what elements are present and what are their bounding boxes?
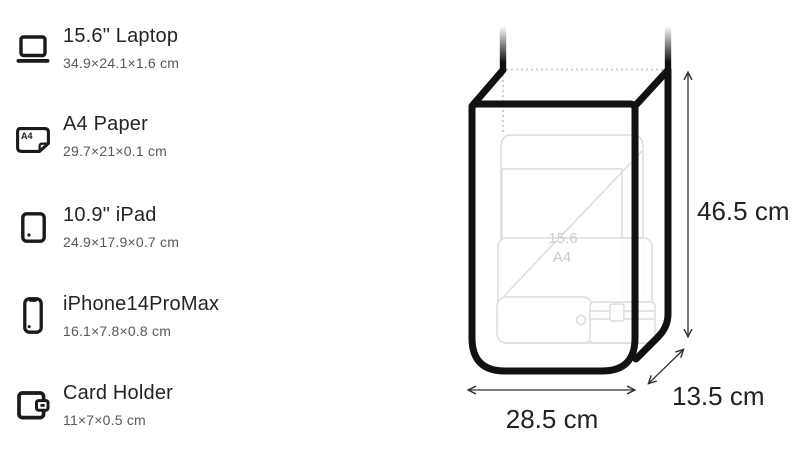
width-label: 28.5 cm xyxy=(506,404,599,434)
size-comparison-panel: 15.6" Laptop 34.9×24.1×1.6 cm A4 A4 Pape… xyxy=(0,0,800,455)
depth-arrow xyxy=(649,350,683,383)
contents-a4-mark: A4 xyxy=(553,249,571,266)
contents-laptop-mark: 15.6 xyxy=(548,230,577,247)
bag-dimension-diagram: 15.6 A4 46.5 cm 28.5 cm 13.5 cm xyxy=(0,0,800,455)
height-label: 46.5 cm xyxy=(697,196,790,226)
depth-label: 13.5 cm xyxy=(672,381,765,411)
bag-straps xyxy=(500,26,671,71)
